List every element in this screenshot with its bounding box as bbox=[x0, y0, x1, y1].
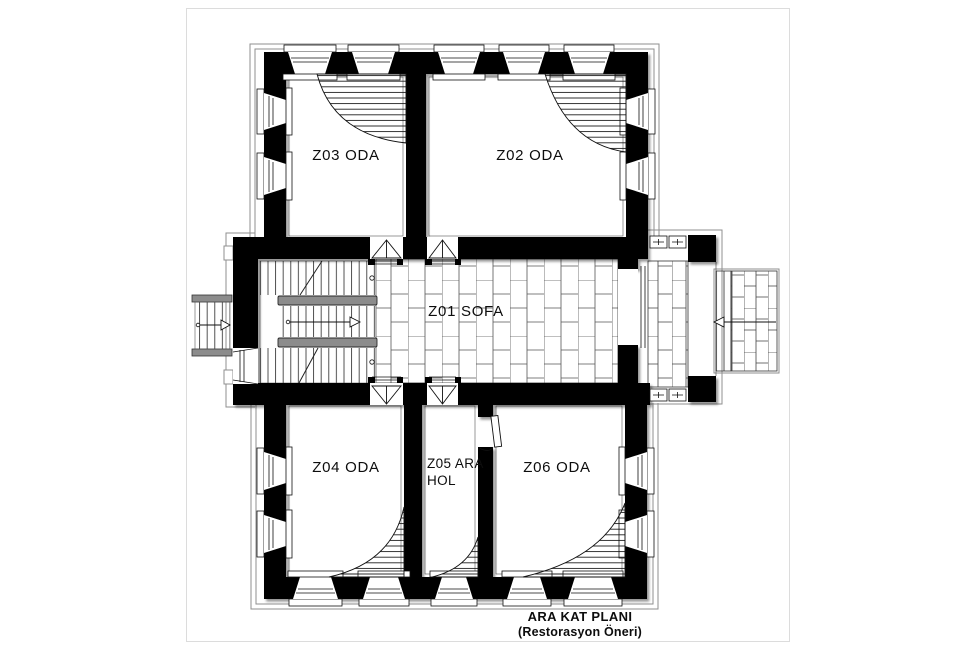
page: Z03 ODA Z02 ODA Z01 SOFA Z04 ODA Z05 ARA… bbox=[0, 0, 976, 650]
room-label-z01: Z01 SOFA bbox=[428, 303, 504, 320]
door-sofa-z02 bbox=[425, 237, 461, 265]
pilaster bbox=[224, 246, 233, 260]
room-label-z04: Z04 ODA bbox=[312, 459, 379, 476]
floor-plan-svg: Z03 ODA Z02 ODA Z01 SOFA Z04 ODA Z05 ARA… bbox=[0, 0, 976, 650]
entry-terrace-right bbox=[714, 271, 777, 371]
room-label-z05-line1: Z05 ARA bbox=[427, 456, 484, 471]
pilaster bbox=[224, 370, 233, 384]
entrance-door-west bbox=[233, 348, 258, 384]
room-label-z05-line2: HOL bbox=[427, 473, 456, 488]
sofa-floor-tiles bbox=[376, 259, 618, 383]
exterior-stair-left bbox=[192, 295, 232, 356]
stair-flight-upper bbox=[260, 261, 376, 295]
caption-title: ARA KAT PLANI bbox=[528, 609, 633, 624]
stair-handrail bbox=[278, 296, 377, 305]
room-label-z06: Z06 ODA bbox=[523, 459, 590, 476]
stair-handrail bbox=[278, 338, 377, 347]
room-label-z02: Z02 ODA bbox=[496, 147, 563, 164]
stair-flight-lower bbox=[260, 348, 376, 383]
porch-doorway-east bbox=[618, 266, 645, 348]
caption-subtitle: (Restorasyon Öneri) bbox=[518, 624, 642, 639]
door-sofa-z03 bbox=[368, 237, 403, 265]
room-label-z03: Z03 ODA bbox=[312, 147, 379, 164]
